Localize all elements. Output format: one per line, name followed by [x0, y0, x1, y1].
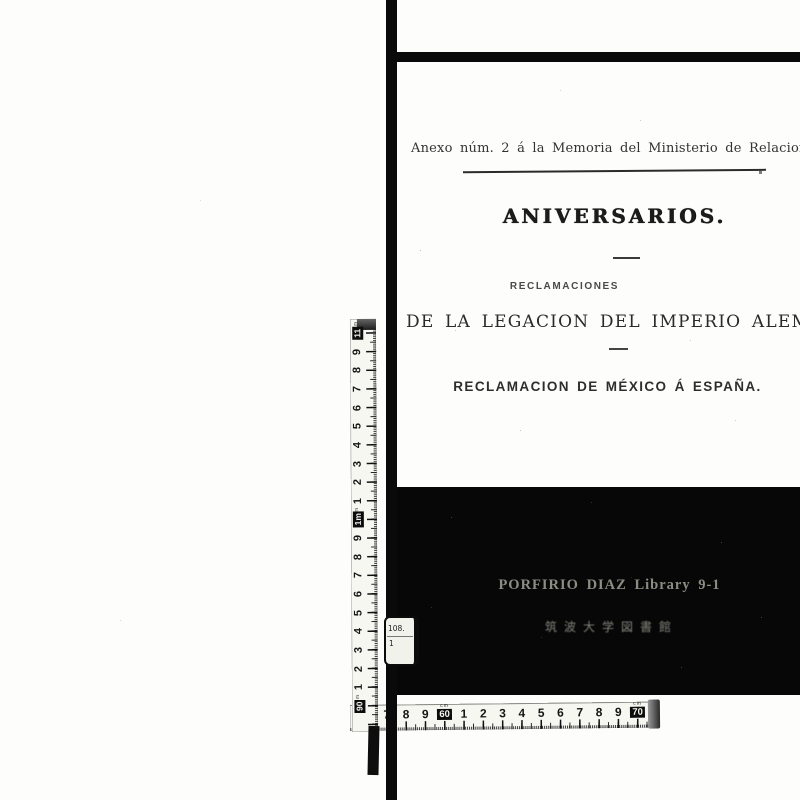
header-rule [463, 169, 766, 174]
title-page: Anexo núm. 2 á la Memoria del Ministerio… [397, 62, 800, 487]
divider-rule-small [613, 257, 640, 259]
ruler-mark: 7 [350, 381, 365, 396]
ruler-mark: 3 [492, 704, 512, 719]
japanese-library-stamp-text: 筑波大学図書館 [407, 618, 800, 635]
ruler-mark: 8 [396, 705, 416, 720]
sticker-line2: 1 [389, 639, 394, 648]
ruler-mark: 2 [473, 704, 493, 719]
ruler-mark: cm70 [628, 703, 648, 718]
ruler-mark: 5 [531, 704, 551, 719]
ruler-mark: 2 [351, 475, 366, 490]
vertical-ruler-cm-ticks [366, 319, 378, 732]
scan-left-edge-line [386, 0, 397, 800]
ruler-mark: 1 [351, 493, 366, 508]
library-stamp-text: PORFIRIO DIAZ Library 9-1 [405, 577, 800, 594]
ruler-mark: 7 [570, 703, 590, 718]
ruler-mark: 9 [351, 531, 366, 546]
scan-top-edge-line [392, 52, 800, 62]
vertical-tape-tail [367, 726, 379, 775]
ruler-mark: 3 [352, 643, 367, 658]
ruler-mark: 8 [350, 363, 365, 378]
ruler-mark: m11 [350, 325, 365, 340]
ruler-mark: 6 [351, 587, 366, 602]
ruler-mark: 9 [350, 344, 365, 359]
ruler-mark: 8 [351, 549, 366, 564]
ruler-mark: 2 [352, 661, 367, 676]
ruler-mark: cm60 [435, 705, 455, 720]
ruler-mark: 1 [454, 705, 474, 720]
ruler-mark: 5 [350, 419, 365, 434]
ruler-mark: 1 [352, 680, 367, 695]
ruler-mark: 5 [351, 605, 366, 620]
vertical-tape-measure: m11987654321m1m987654321m90 [350, 319, 378, 732]
ruler-mark: m90 [352, 698, 367, 713]
page-title: ANIVERSARIOS. [413, 204, 800, 228]
ruler-mark: 4 [351, 437, 366, 452]
ruler-mark: 4 [512, 704, 532, 719]
subtitle-secondary: RECLAMACION DE MÉXICO Á ESPAÑA. [406, 379, 800, 394]
ruler-mark: 9 [415, 705, 435, 720]
black-stamp-block: PORFIRIO DIAZ Library 9-1 筑波大学図書館 [391, 487, 800, 695]
annex-header-line: Anexo núm. 2 á la Memoria del Ministerio… [411, 141, 800, 156]
paper-speckles [0, 0, 1, 1]
divider-rule-small-2 [609, 348, 628, 350]
scanned-book-photo: Anexo núm. 2 á la Memoria del Ministerio… [0, 0, 800, 800]
ruler-mark: 7 [351, 568, 366, 583]
ruler-mark: 3 [351, 456, 366, 471]
ruler-mark: 8 [589, 703, 609, 718]
ruler-mark: 6 [550, 703, 570, 718]
ruler-mark: 4 [352, 624, 367, 639]
subtitle-small: RECLAMACIONES [363, 281, 766, 292]
sticker-divider [387, 636, 413, 637]
ruler-mark: m1m [351, 512, 366, 527]
sticker-line1: 108. [388, 624, 405, 633]
subtitle-main: DE LA LEGACION DEL IMPERIO ALEMAN. [406, 312, 800, 332]
call-number-sticker: 108. 1 [384, 616, 419, 666]
ruler-mark: 6 [350, 400, 365, 415]
tape-end-clip-right [648, 699, 660, 728]
ruler-mark: 9 [608, 703, 628, 718]
